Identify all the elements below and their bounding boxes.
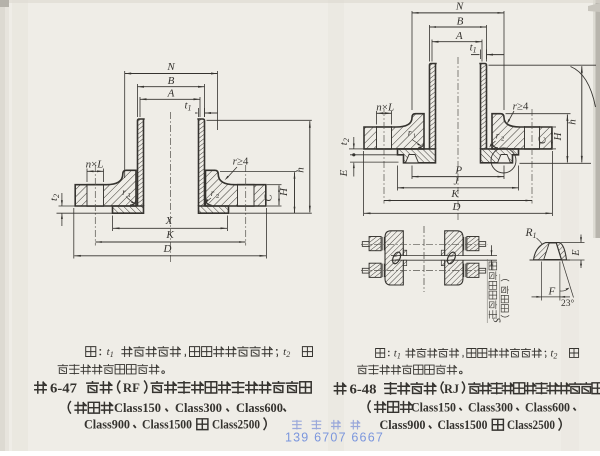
svg-text:6-48: 6-48 [350, 381, 377, 396]
svg-text:B: B [168, 75, 175, 87]
svg-text:F: F [548, 286, 556, 298]
svg-text:RF: RF [123, 381, 140, 395]
svg-text:P: P [454, 164, 462, 176]
svg-text:A: A [167, 88, 175, 100]
svg-text:C: C [537, 136, 549, 144]
svg-text:Class300: Class300 [175, 401, 222, 415]
svg-text:D: D [163, 243, 172, 255]
svg-text:RJ: RJ [444, 382, 459, 396]
svg-text:Class600: Class600 [236, 401, 283, 415]
svg-text:r≥4: r≥4 [233, 156, 249, 168]
svg-text:D: D [452, 201, 461, 213]
svg-text:K: K [450, 188, 459, 200]
svg-text:h: h [567, 119, 579, 125]
svg-text:Class150: Class150 [411, 400, 456, 414]
svg-text:X: X [165, 215, 174, 227]
svg-text:C: C [263, 194, 275, 202]
svg-text:Class900: Class900 [380, 418, 426, 432]
svg-text:A: A [455, 30, 463, 42]
svg-text:E: E [571, 249, 582, 256]
svg-text:E: E [338, 169, 350, 177]
svg-text:r: r [211, 188, 215, 198]
svg-text:N: N [455, 1, 464, 13]
svg-text:r: r [408, 128, 412, 138]
svg-text:H: H [278, 187, 290, 197]
svg-text:K: K [165, 229, 174, 241]
svg-text:Class1500: Class1500 [142, 418, 192, 432]
svg-text:Class2500: Class2500 [212, 418, 260, 432]
svg-text:r: r [122, 187, 126, 197]
svg-text:r: r [496, 131, 500, 141]
svg-text:B: B [457, 15, 464, 27]
svg-text:Class300: Class300 [468, 400, 513, 414]
svg-text:139 6707 6667: 139 6707 6667 [285, 431, 384, 445]
svg-text:Class150: Class150 [114, 401, 161, 415]
svg-text:1: 1 [413, 133, 416, 140]
svg-text:2: 2 [501, 136, 504, 143]
svg-text:Class1500: Class1500 [438, 418, 488, 432]
svg-text:H: H [552, 131, 564, 141]
svg-text:Class2500: Class2500 [507, 418, 555, 432]
svg-text:Class600: Class600 [525, 400, 570, 414]
svg-text:Class900: Class900 [84, 418, 130, 432]
svg-text:N: N [166, 61, 175, 73]
svg-text:6-47: 6-47 [50, 380, 77, 395]
svg-text:h: h [295, 167, 307, 173]
svg-text:2: 2 [216, 193, 219, 200]
svg-text:r≥4: r≥4 [513, 101, 529, 113]
svg-text:23°: 23° [561, 298, 575, 309]
svg-text:n×L: n×L [86, 159, 104, 171]
